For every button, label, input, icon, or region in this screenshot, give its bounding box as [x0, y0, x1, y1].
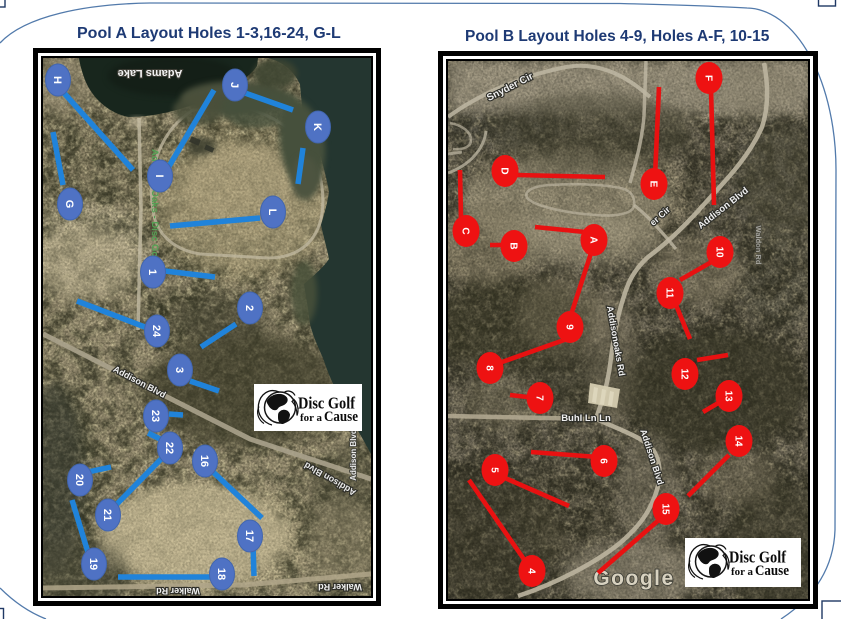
svg-text:Addison Blvd: Addison Blvd [349, 429, 358, 481]
svg-text:16: 16 [198, 455, 210, 467]
svg-text:15: 15 [660, 503, 671, 515]
svg-text:Adams Lake: Adams Lake [118, 67, 183, 79]
svg-text:Google: Google [593, 567, 674, 590]
svg-text:9: 9 [564, 324, 575, 330]
svg-text:7: 7 [534, 395, 545, 401]
svg-text:2: 2 [243, 305, 255, 311]
svg-text:E: E [648, 181, 659, 188]
svg-text:Walker Rd: Walker Rd [156, 586, 200, 596]
svg-text:for a: for a [300, 412, 322, 424]
svg-text:C: C [460, 227, 471, 234]
svg-text:I: I [153, 174, 165, 177]
svg-text:3: 3 [173, 367, 185, 373]
svg-text:J: J [228, 82, 240, 88]
svg-text:A: A [588, 236, 599, 243]
svg-text:6: 6 [598, 458, 609, 464]
svg-text:11: 11 [664, 288, 675, 299]
svg-text:19: 19 [87, 558, 99, 570]
svg-text:Waldon Rd: Waldon Rd [754, 226, 763, 265]
svg-text:D: D [499, 167, 510, 174]
svg-text:Cause: Cause [755, 563, 789, 579]
svg-text:17: 17 [243, 530, 255, 542]
svg-text:13: 13 [723, 390, 734, 402]
svg-text:K: K [311, 123, 323, 131]
svg-text:8: 8 [484, 365, 495, 371]
svg-text:23: 23 [149, 410, 161, 422]
svg-text:10: 10 [714, 246, 725, 258]
svg-text:12: 12 [679, 368, 690, 380]
svg-text:1: 1 [146, 269, 158, 275]
svg-text:H: H [51, 76, 63, 84]
svg-text:B: B [508, 242, 519, 249]
svg-text:L: L [266, 209, 278, 216]
svg-text:5: 5 [489, 467, 500, 473]
svg-text:Buhl Ln Ln: Buhl Ln Ln [561, 413, 611, 424]
svg-text:24: 24 [150, 325, 162, 338]
svg-text:Walker Rd: Walker Rd [318, 582, 362, 592]
svg-text:for a: for a [731, 566, 753, 578]
svg-text:F: F [703, 75, 714, 81]
svg-text:20: 20 [73, 474, 85, 486]
svg-text:21: 21 [101, 509, 113, 521]
svg-text:22: 22 [163, 442, 175, 454]
svg-text:Cause: Cause [324, 409, 358, 425]
svg-text:14: 14 [733, 435, 744, 447]
svg-text:G: G [63, 200, 75, 209]
svg-text:18: 18 [215, 568, 227, 580]
svg-text:4: 4 [526, 568, 537, 574]
